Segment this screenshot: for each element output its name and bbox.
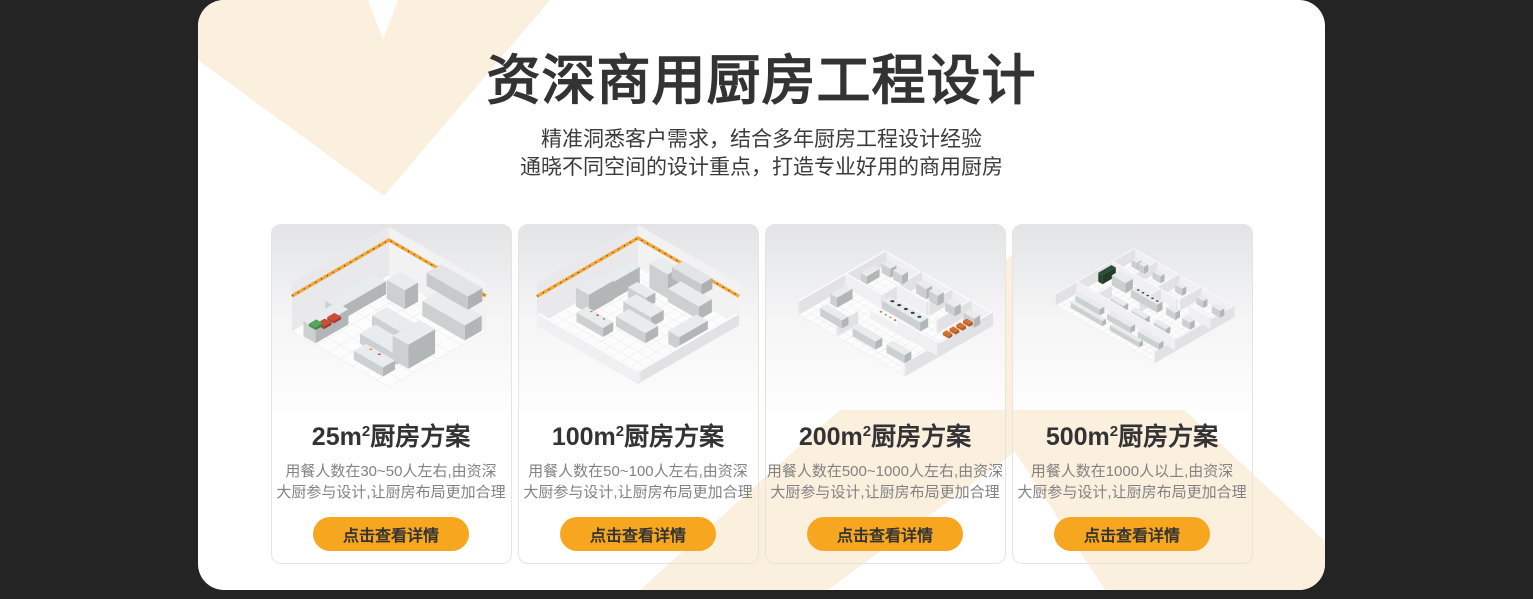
plan-card-title: 500m2厨房方案	[1013, 423, 1252, 455]
desc-line-2: 大厨参与设计,让厨房布局更加合理	[519, 482, 758, 503]
plan-card-description: 用餐人数在30~50人左右,由资深 大厨参与设计,让厨房布局更加合理	[272, 461, 511, 503]
section-header: 资深商用厨房工程设计 精准洞悉客户需求，结合多年厨房工程设计经验 通晓不同空间的…	[198, 0, 1325, 182]
desc-line-1: 用餐人数在500~1000人左右,由资深	[766, 461, 1005, 482]
plan-card-500m2: 500m2厨房方案 用餐人数在1000人以上,由资深 大厨参与设计,让厨房布局更…	[1012, 224, 1253, 564]
desc-line-1: 用餐人数在30~50人左右,由资深	[272, 461, 511, 482]
subtitle-line-2: 通晓不同空间的设计重点，打造专业好用的商用厨房	[198, 154, 1325, 182]
plan-card-25m2: 25m2厨房方案 用餐人数在30~50人左右,由资深 大厨参与设计,让厨房布局更…	[271, 224, 512, 564]
view-details-button[interactable]: 点击查看详情	[313, 517, 469, 551]
subtitle-line-1: 精准洞悉客户需求，结合多年厨房工程设计经验	[198, 126, 1325, 154]
desc-line-2: 大厨参与设计,让厨房布局更加合理	[766, 482, 1005, 503]
plan-area-value: 100m	[552, 423, 616, 451]
plan-title-suffix: 厨房方案	[871, 423, 971, 451]
plan-card-200m2: 200m2厨房方案 用餐人数在500~1000人左右,由资深 大厨参与设计,让厨…	[765, 224, 1006, 564]
plan-title-suffix: 厨房方案	[624, 423, 724, 451]
section-content: 资深商用厨房工程设计 精准洞悉客户需求，结合多年厨房工程设计经验 通晓不同空间的…	[198, 0, 1325, 590]
plan-card-title: 100m2厨房方案	[519, 423, 758, 455]
plan-area-sup: 2	[863, 423, 871, 440]
plan-card-description: 用餐人数在500~1000人左右,由资深 大厨参与设计,让厨房布局更加合理	[766, 461, 1005, 503]
plan-card-100m2: 100m2厨房方案 用餐人数在50~100人左右,由资深 大厨参与设计,让厨房布…	[518, 224, 759, 564]
plan-title-suffix: 厨房方案	[1118, 423, 1218, 451]
view-details-button[interactable]: 点击查看详情	[1054, 517, 1210, 551]
section-panel: 资深商用厨房工程设计 精准洞悉客户需求，结合多年厨房工程设计经验 通晓不同空间的…	[198, 0, 1325, 590]
page-title: 资深商用厨房工程设计	[198, 52, 1325, 111]
plan-title-suffix: 厨房方案	[370, 423, 470, 451]
plan-card-title: 200m2厨房方案	[766, 423, 1005, 455]
view-details-button[interactable]: 点击查看详情	[807, 517, 963, 551]
plan-card-description: 用餐人数在50~100人左右,由资深 大厨参与设计,让厨房布局更加合理	[519, 461, 758, 503]
kitchen-3d-render-25m2	[272, 225, 511, 410]
page-background: 资深商用厨房工程设计 精准洞悉客户需求，结合多年厨房工程设计经验 通晓不同空间的…	[0, 0, 1533, 599]
desc-line-2: 大厨参与设计,让厨房布局更加合理	[1013, 482, 1252, 503]
plan-area-value: 200m	[799, 423, 863, 451]
desc-line-2: 大厨参与设计,让厨房布局更加合理	[272, 482, 511, 503]
view-details-button[interactable]: 点击查看详情	[560, 517, 716, 551]
desc-line-1: 用餐人数在1000人以上,由资深	[1013, 461, 1252, 482]
kitchen-3d-render-200m2	[766, 225, 1005, 410]
plan-area-sup: 2	[616, 423, 624, 440]
plan-area-sup: 2	[1110, 423, 1118, 440]
kitchen-3d-render-100m2	[519, 225, 758, 410]
desc-line-1: 用餐人数在50~100人左右,由资深	[519, 461, 758, 482]
plan-area-value: 25m	[312, 423, 362, 451]
plan-card-title: 25m2厨房方案	[272, 423, 511, 455]
plan-cards-row: 25m2厨房方案 用餐人数在30~50人左右,由资深 大厨参与设计,让厨房布局更…	[198, 224, 1325, 564]
plan-card-description: 用餐人数在1000人以上,由资深 大厨参与设计,让厨房布局更加合理	[1013, 461, 1252, 503]
plan-area-sup: 2	[362, 423, 370, 440]
subtitle: 精准洞悉客户需求，结合多年厨房工程设计经验 通晓不同空间的设计重点，打造专业好用…	[198, 126, 1325, 182]
plan-area-value: 500m	[1046, 423, 1110, 451]
kitchen-3d-render-500m2	[1013, 225, 1252, 410]
